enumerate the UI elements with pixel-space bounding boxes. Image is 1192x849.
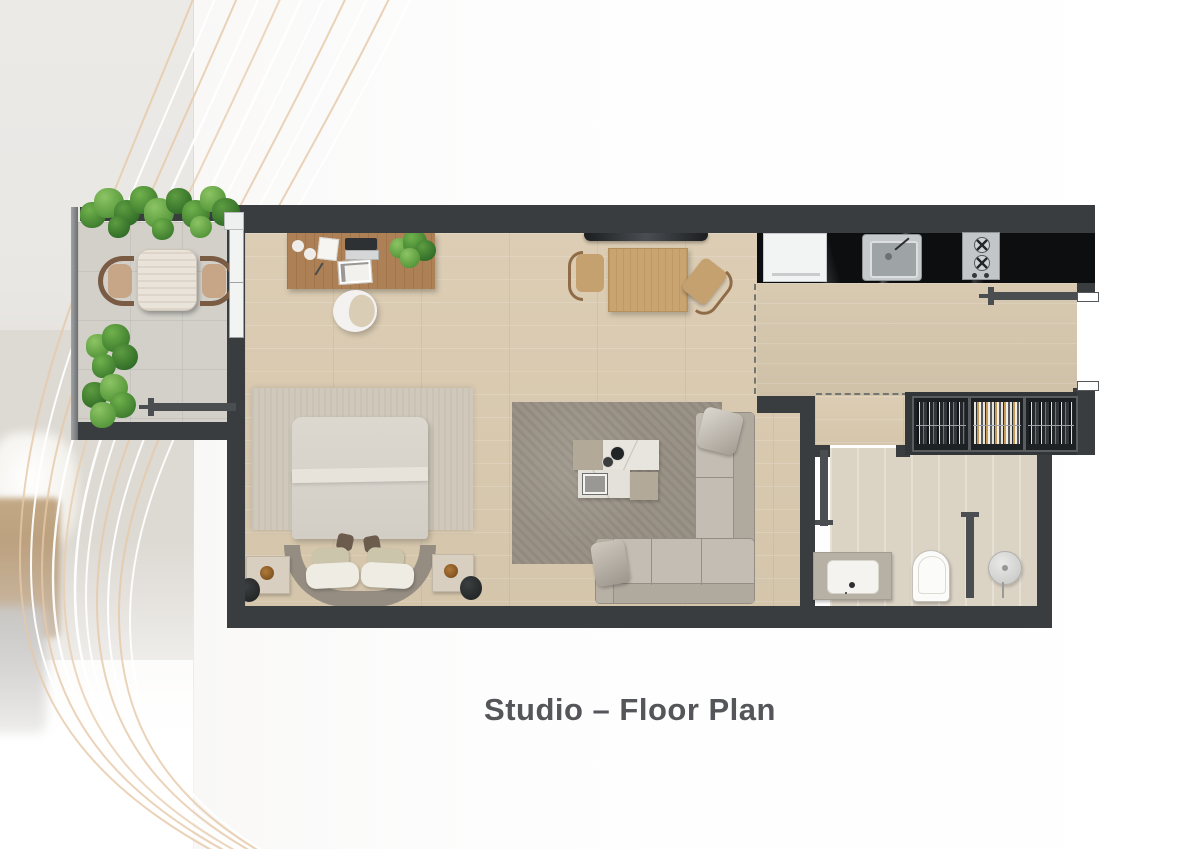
foliage-blob (400, 248, 420, 268)
sofa-seam (651, 539, 652, 585)
desk-plant (390, 230, 436, 270)
potted-plant (82, 374, 140, 430)
vanity-sink (827, 560, 879, 594)
hedge-planter (80, 184, 238, 244)
headphones-icon (292, 240, 304, 252)
foliage-blob (90, 402, 116, 428)
bedside-decor (444, 564, 458, 578)
wall-bathroom-right (1037, 448, 1052, 606)
vestibule-floor (815, 396, 910, 445)
sliding-door-sill (224, 212, 244, 230)
outdoor-table (137, 249, 197, 311)
toilet (912, 550, 950, 602)
sofa-seam (701, 539, 702, 585)
fridge-handle (772, 273, 820, 276)
shower-head-center (1002, 565, 1008, 571)
bathroom-door-handle (815, 520, 833, 525)
fridge (763, 233, 827, 282)
cooktop-knob (972, 273, 977, 278)
burner (974, 255, 990, 271)
dining-chair-left-seat (576, 254, 604, 292)
dining-table (608, 248, 688, 312)
sliding-glass-door (229, 226, 244, 338)
hanging-clothes (917, 402, 965, 444)
shower-head (988, 551, 1022, 585)
entry-door-jamb-top (1077, 292, 1099, 302)
shower-hose (1002, 582, 1004, 598)
balcony-door-handle-nub (139, 405, 149, 409)
sink-drain (885, 253, 892, 260)
potted-plant (86, 324, 140, 380)
vanity-faucet (849, 582, 855, 588)
wardrobe-closet (969, 396, 1025, 452)
zone-divider-horizontal (816, 393, 908, 395)
closet-rod (1028, 425, 1074, 426)
sofa-seam (696, 477, 734, 478)
zone-divider-vertical (754, 284, 756, 394)
floor-plan-page: Studio – Floor Plan (0, 0, 1192, 849)
page-title: Studio – Floor Plan (484, 692, 776, 728)
wall-bottom (227, 606, 1052, 628)
coffee-table-block-gray (630, 472, 658, 500)
balcony-railing (71, 207, 78, 440)
bed-fold (292, 467, 428, 483)
balcony-door-leaf (152, 403, 236, 411)
shower-partition-cap (961, 512, 979, 517)
sofa-pillow-end (590, 539, 630, 588)
bathroom-door-leaf (820, 450, 828, 526)
entry-door-handle-nub (979, 294, 989, 298)
foliage-blob (152, 218, 174, 240)
hanging-clothes (974, 402, 1020, 444)
bed-pillow-white (360, 562, 414, 590)
wardrobe-closet (1024, 396, 1078, 452)
sink-basin (870, 241, 918, 278)
entry-door-jamb-bottom (1077, 381, 1099, 391)
wall-top (237, 205, 1095, 233)
outdoor-chair-right-seat (202, 264, 226, 298)
closet-rod (973, 425, 1021, 426)
decor-frame (583, 474, 607, 494)
cooktop (962, 232, 1000, 280)
bedside-decor (260, 566, 274, 580)
outdoor-chair-left-seat (108, 264, 132, 298)
decor-bowl (602, 456, 614, 468)
foliage-blob (108, 216, 130, 238)
shower-partition (966, 516, 974, 598)
laptop-icon (345, 238, 377, 250)
pouf-right (460, 576, 482, 600)
cooktop-knob (984, 273, 989, 278)
bed-pillow-white (305, 562, 359, 590)
entry-door-leaf (992, 292, 1077, 300)
wall-hall-divider (757, 396, 815, 413)
desk-papers (317, 237, 340, 261)
foliage-blob (190, 216, 212, 238)
hanging-clothes (1029, 402, 1073, 444)
burner (974, 237, 990, 253)
closet-rod (916, 425, 966, 426)
sofa-backrest (596, 583, 754, 603)
desk-magazines (337, 259, 373, 285)
wardrobe-closet (912, 396, 970, 452)
kitchen-sink (862, 234, 922, 281)
coffee-table-block-gray (573, 440, 603, 470)
toilet-seat-line (918, 556, 946, 594)
